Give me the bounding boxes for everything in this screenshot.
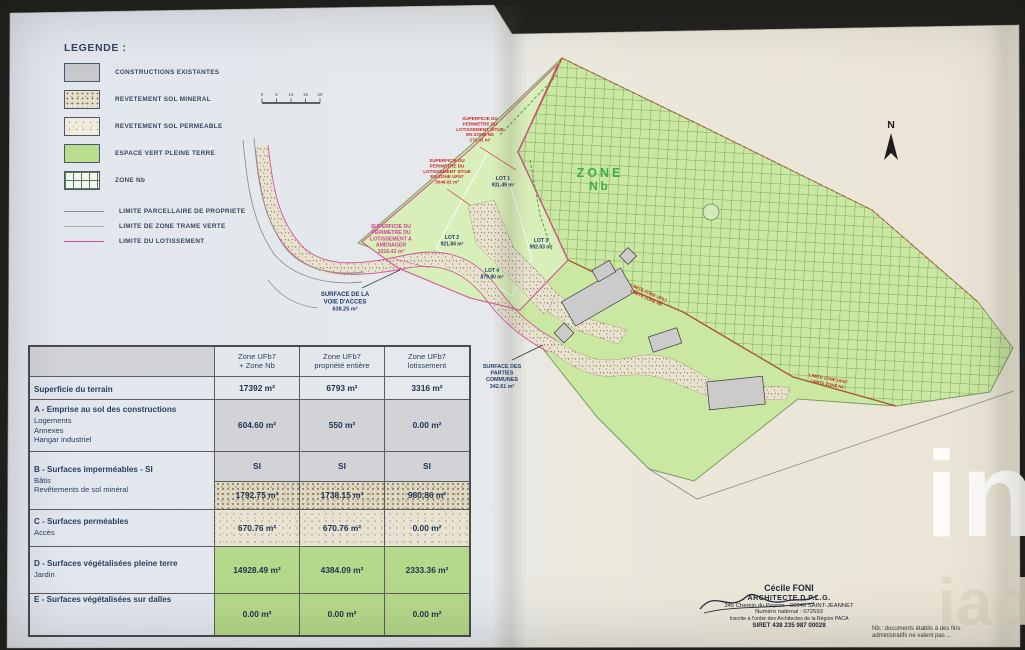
value-cell: 0.00 m² [385,509,471,546]
svg-text:SUPERFICIE DU: SUPERFICIE DU [429,158,465,163]
legend-label: CONSTRUCTIONS EXISTANTES [115,69,219,76]
col-header-zone-ufb7-lotissement: Zone UFb7lotissement [385,346,471,376]
svg-text:SURFACE DE LA: SURFACE DE LA [321,292,370,298]
legend-item-constructions: CONSTRUCTIONS EXISTANTES [64,63,314,81]
value-cell: 980.86 m² [385,481,471,509]
svg-text:N: N [887,119,895,131]
legend-item-limite-lotissement: LIMITE DU LOTISSEMENT [64,236,314,246]
legend-label: ZONE Nb [115,177,145,184]
value-cell: 2333.36 m² [385,546,471,593]
svg-text:3316.42 m²: 3316.42 m² [378,249,405,255]
admin-note-line2: administratifs ne valent pas ... [872,633,1022,640]
svg-text:LOTISSEMENT SITUE: LOTISSEMENT SITUE [423,169,470,174]
value-cell: 550 m² [300,399,385,451]
row-sublabel: Bâtis Revêtements de sol minéral [34,476,210,495]
svg-text:992.03 m²: 992.03 m² [530,244,553,250]
svg-text:Nb: Nb [589,181,610,193]
value-cell: 6793 m² [300,376,385,399]
svg-text:LOTISSEMENT A: LOTISSEMENT A [370,236,412,242]
legend-title: LEGENDE : [64,42,314,54]
value-cell: 670.76 m² [215,509,300,546]
svg-text:638.25 m²: 638.25 m² [332,306,357,313]
zone-nb-swatch-icon [64,171,100,190]
value-cell: 0.00 m² [385,593,471,636]
svg-text:270.41 m²: 270.41 m² [470,138,491,143]
value-cell: 0.00 m² [215,593,300,636]
row-label: C - Surfaces perméables [34,517,210,527]
legend-label: LIMITE DE ZONE TRAME VERTE [119,223,226,230]
row-label: B - Surfaces imperméables - SI [34,465,210,475]
admin-note-line1: Nb.: documents établis à des fins [872,626,1022,633]
tree-circle-icon [703,204,719,220]
col-header-zone-ufb7-nb: Zone UFb7+ Zone Nb [215,346,300,376]
row-emprise: A - Emprise au sol des constructions Log… [29,399,470,451]
svg-text:LOT 3: LOT 3 [534,238,548,244]
permeable-swatch-icon [64,117,100,136]
value-cell: 0.00 m² [300,593,385,636]
value-cell: 0.00 m² [385,399,471,451]
watermark-text-top: in [925,424,1025,564]
mineral-swatch-icon [64,90,100,109]
row-vegetalisees-pleine-terre: D - Surfaces végétalisées pleine terre J… [29,546,470,593]
svg-text:AMENAGER: AMENAGER [376,243,407,249]
value-cell: SI [385,451,471,481]
row-label: E - Surfaces végétalisées sur dalles [34,595,210,605]
col-header-zone-ufb7-propriete: Zone UFb7propriété entière [300,346,385,376]
row-label: D - Surfaces végétalisées pleine terre [34,559,210,569]
legend-item-limite-trame-verte: LIMITE DE ZONE TRAME VERTE [64,221,314,231]
value-cell: 4384.09 m² [300,546,385,593]
admin-note: Nb.: documents établis à des fins admini… [872,626,1022,640]
legend-item-permeable: REVETEMENT SOL PERMEABLE [64,117,314,135]
site-plan-photo: ZONE Nb LOT 1931.49 m² LOT 2921.84 m² LO… [0,0,1025,650]
legend-item-mineral: REVETEMENT SOL MINERAL [64,90,314,108]
legend-label: LIMITE PARCELLAIRE DE PROPRIETE [119,208,245,215]
svg-text:SUPERFICIE DU: SUPERFICIE DU [371,224,411,230]
row-permeables: C - Surfaces perméables Accès 670.76 m² … [29,509,470,546]
table-corner-cell [29,346,215,376]
row-vegetalisees-dalles: E - Surfaces végétalisées sur dalles 0.0… [29,593,470,636]
value-cell: 670.76 m² [300,509,385,546]
parcel-line-icon [64,211,104,212]
constructions-swatch-icon [64,63,100,82]
value-cell: 1738.15 m² [300,481,385,509]
row-sublabel: Jardin [34,570,210,579]
legend-item-zone-nb: ZONE Nb [64,171,314,189]
svg-text:EN ZONE UFb7: EN ZONE UFb7 [430,174,464,179]
svg-text:PERIMETRE DU: PERIMETRE DU [430,163,465,168]
row-impermeables-si: B - Surfaces imperméables - SI Bâtis Rev… [29,451,470,481]
legend-label: LIMITE DU LOTISSEMENT [119,238,204,245]
svg-text:3046.01 m²: 3046.01 m² [435,180,459,185]
architect-stamp: Cécile FONI ARCHITECTE D.P.L.G. 345 Chem… [694,583,884,629]
surface-table: Zone UFb7+ Zone Nb Zone UFb7propriété en… [28,345,471,637]
legend-item-espace-vert: ESPACE VERT PLEINE TERRE [64,144,314,162]
svg-text:LOT 2: LOT 2 [445,235,459,241]
row-label: Superficie du terrain [34,385,113,394]
espace-vert-swatch-icon [64,144,100,163]
value-cell: 17392 m² [215,376,300,399]
lotissement-line-icon [64,241,104,242]
svg-text:20: 20 [318,92,323,97]
row-sublabel: Logements Annexes Hangar industriel [34,416,210,444]
signature [694,583,824,617]
table-header-row: Zone UFb7+ Zone Nb Zone UFb7propriété en… [29,346,470,376]
value-cell: 14928.49 m² [215,546,300,593]
legend: LEGENDE : CONSTRUCTIONS EXISTANTES REVET… [64,42,314,251]
legend-label: REVETEMENT SOL PERMEABLE [115,123,223,130]
architect-siret: SIRET 438 235 987 00028 [694,622,884,629]
svg-text:ZONE: ZONE [577,166,624,180]
paper-fold-crease [492,6,528,648]
value-cell: 604.60 m² [215,399,300,451]
value-cell: SI [215,451,300,481]
legend-label: ESPACE VERT PLEINE TERRE [115,150,215,157]
value-cell: SI [300,451,385,481]
svg-text:EN ZONE Nb: EN ZONE Nb [466,132,494,137]
legend-item-limite-parcellaire: LIMITE PARCELLAIRE DE PROPRIETE [64,206,314,216]
svg-text:VOIE D'ACCES: VOIE D'ACCES [324,299,367,305]
row-label: A - Emprise au sol des constructions [34,405,210,415]
svg-text:PERIMETRE DU: PERIMETRE DU [371,230,410,236]
row-superficie: Superficie du terrain 17392 m² 6793 m² 3… [29,376,470,399]
trame-verte-line-icon [64,226,104,227]
legend-label: REVETEMENT SOL MINERAL [115,96,211,103]
value-cell: 3316 m² [385,376,471,399]
row-sublabel: Accès [34,528,210,537]
value-cell: 1792.75 m² [215,481,300,509]
svg-text:921.84 m²: 921.84 m² [441,241,464,247]
